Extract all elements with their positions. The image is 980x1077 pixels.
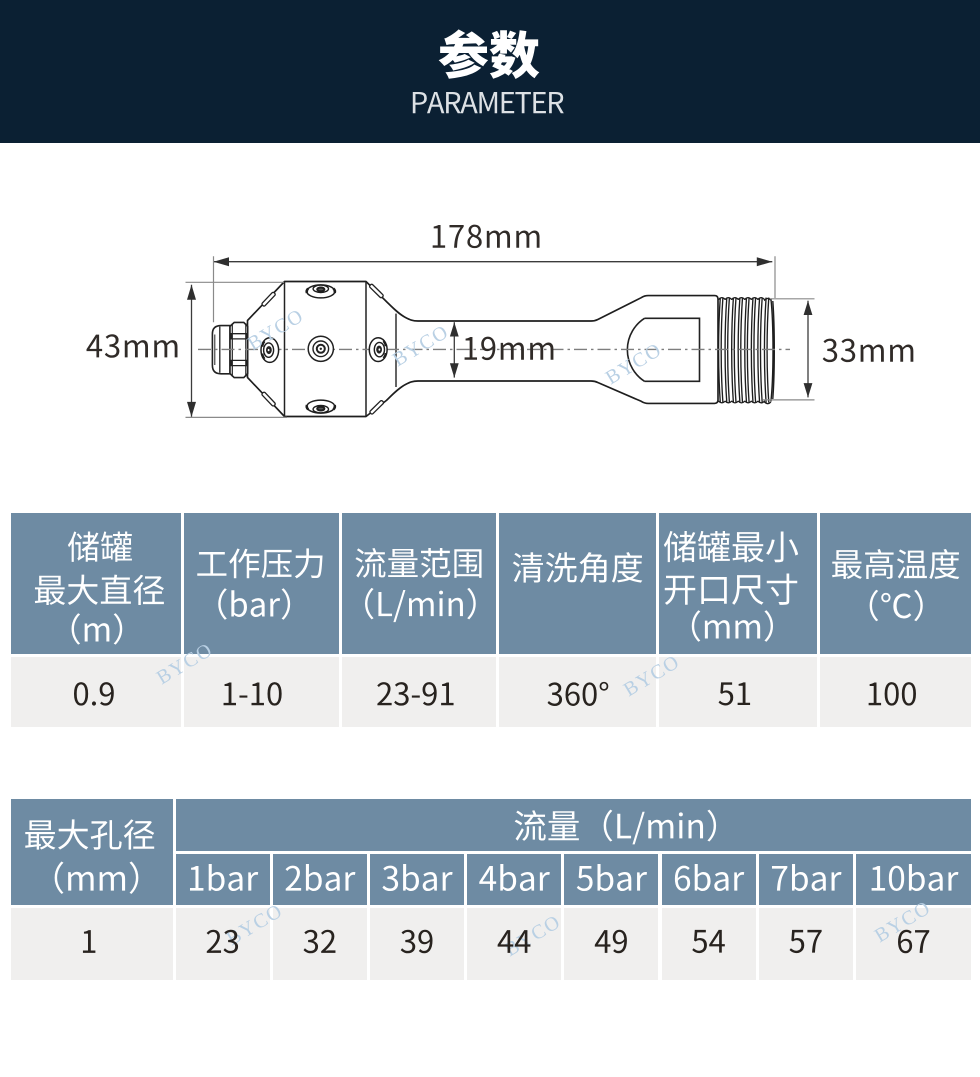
svg-text:BYCO: BYCO — [620, 651, 684, 702]
svg-text:BYCO: BYCO — [501, 911, 565, 962]
svg-text:BYCO: BYCO — [871, 897, 935, 948]
svg-text:BYCO: BYCO — [153, 639, 217, 690]
